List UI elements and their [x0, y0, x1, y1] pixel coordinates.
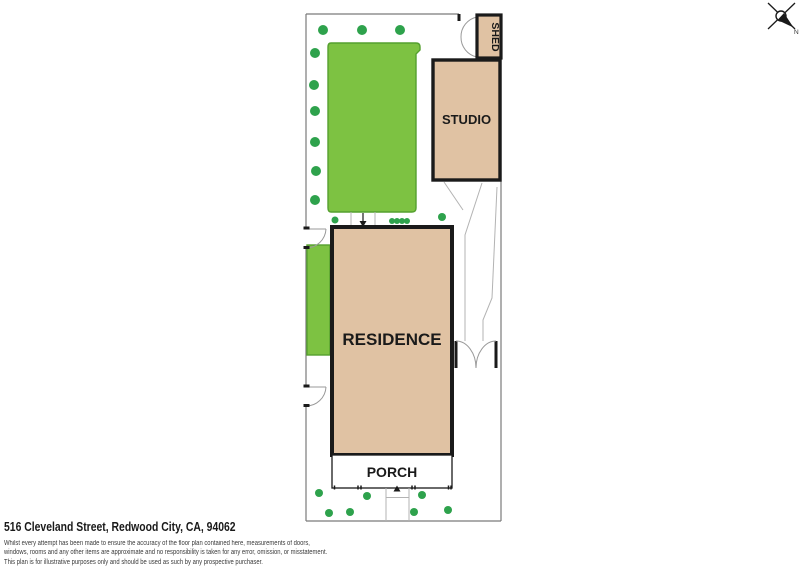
disclaimer-line: Whilst every attempt has been made to en…: [4, 539, 642, 548]
shrub-dot: [404, 218, 410, 224]
shrub-dot: [410, 508, 418, 516]
shrub-dot: [310, 195, 320, 205]
site-plan-page: SHED STUDIO RESIDENCE PORCH: [0, 0, 800, 568]
shrub-dot: [311, 166, 321, 176]
studio-building: STUDIO: [433, 60, 500, 180]
lawn-main: [328, 43, 420, 212]
shed-door-arc: [461, 37, 477, 57]
property-address: 516 Cleveland Street, Redwood City, CA, …: [4, 519, 612, 534]
compass-north-label: N: [794, 29, 799, 36]
disclaimer-line: windows, rooms and any other items are a…: [4, 548, 642, 557]
shrub-dot: [357, 25, 367, 35]
disclaimer-line: This plan is for illustrative purposes o…: [4, 558, 642, 567]
gate-swing-arc: [306, 387, 326, 406]
side-gate-lower: [304, 386, 327, 406]
residence-label: RESIDENCE: [342, 330, 441, 349]
gate-swing-arc: [476, 341, 496, 368]
shrub-dot: [310, 137, 320, 147]
shrub-dot: [395, 25, 405, 35]
shrub-dot: [310, 48, 320, 58]
shrub-dot: [310, 106, 320, 116]
shrub-dot: [418, 491, 426, 499]
studio-label: STUDIO: [442, 112, 491, 127]
shed-building: SHED: [459, 14, 501, 58]
shrub-dot: [444, 506, 452, 514]
shed-label: SHED: [489, 22, 501, 52]
rear-entry-path: [351, 212, 375, 227]
disclaimer-text: Whilst every attempt has been made to en…: [4, 539, 642, 567]
residence-building: RESIDENCE: [332, 227, 452, 455]
shrub-dot: [315, 489, 323, 497]
shrub-dot: [332, 217, 339, 224]
shrub-dot: [363, 492, 371, 500]
studio-path-line: [444, 182, 463, 210]
footer: 516 Cleveland Street, Redwood City, CA, …: [4, 519, 764, 567]
shed-door-arc: [461, 17, 477, 37]
driveway-edge-right: [483, 187, 497, 341]
shrub-dot: [438, 213, 446, 221]
shrub-dot: [325, 509, 333, 517]
porch-area: PORCH: [332, 455, 452, 490]
site-plan-svg: SHED STUDIO RESIDENCE PORCH: [0, 0, 800, 568]
gate-swing-arc: [456, 341, 476, 368]
porch-label: PORCH: [367, 464, 418, 480]
shrub-dot: [318, 25, 328, 35]
driveway-edge-left: [465, 183, 482, 341]
lawn-side-strip: [307, 245, 330, 355]
compass-rose: N: [768, 3, 799, 36]
front-walkway: [386, 486, 409, 522]
shrub-dot: [309, 80, 319, 90]
driveway-double-gate: [456, 341, 496, 368]
shrub-dot: [346, 508, 354, 516]
